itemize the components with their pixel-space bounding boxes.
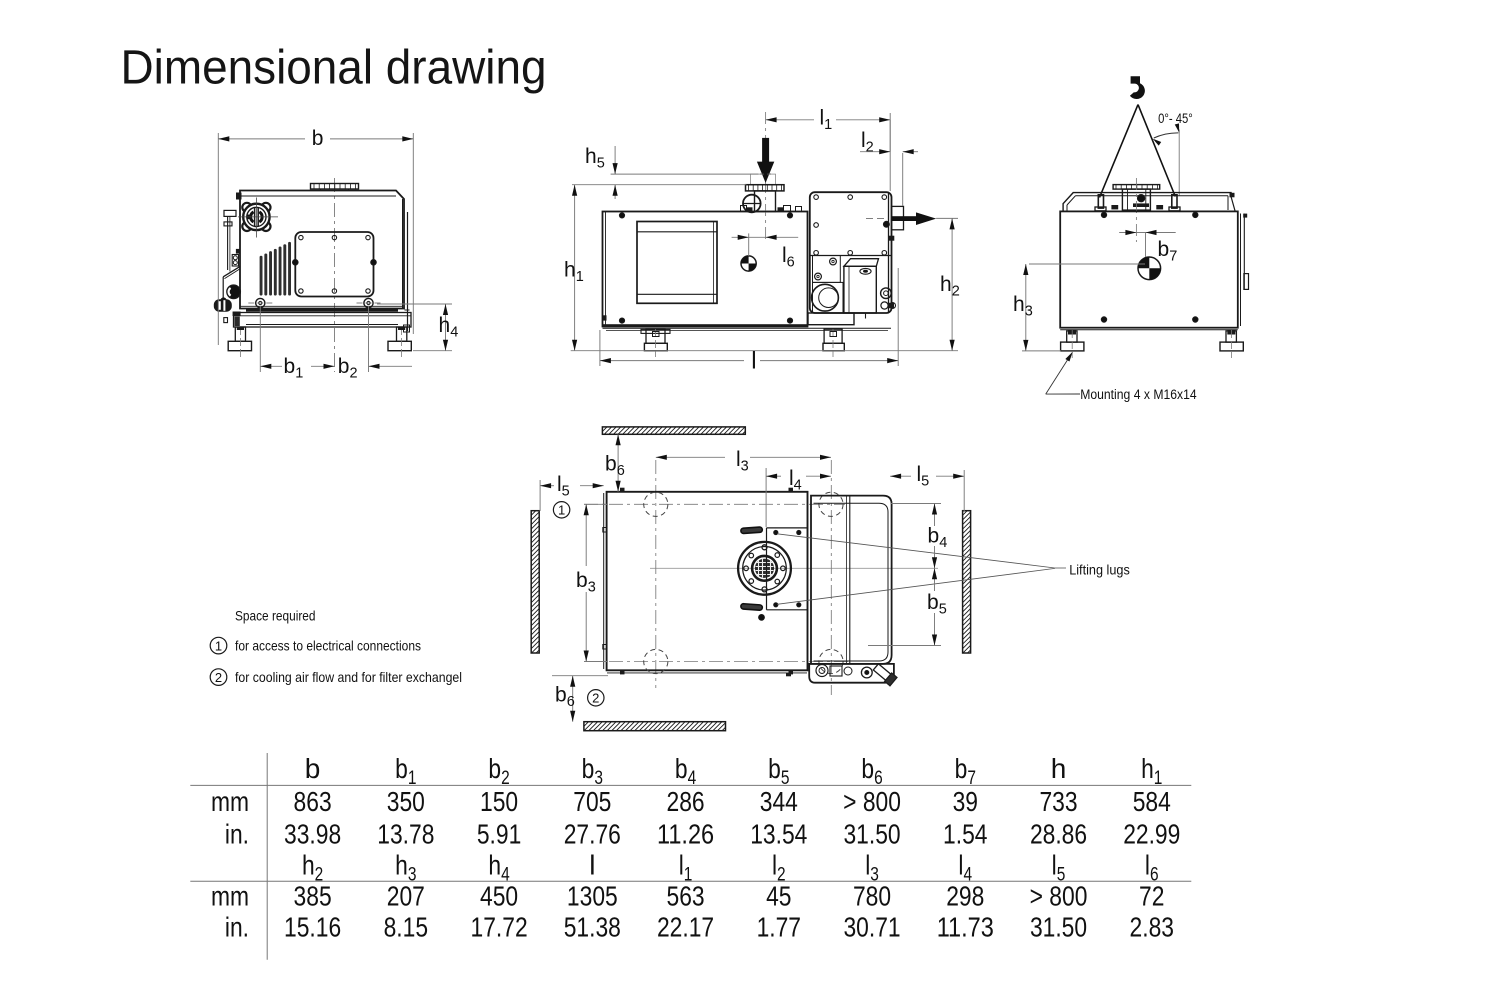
svg-text:> 800: > 800 — [1030, 881, 1088, 912]
svg-text:Mounting 4 x M16x14: Mounting 4 x M16x14 — [1080, 387, 1197, 402]
svg-text:h: h — [1051, 753, 1067, 784]
svg-text:1: 1 — [558, 503, 565, 518]
svg-text:39: 39 — [953, 786, 978, 817]
svg-text:b: b — [582, 753, 595, 784]
svg-text:13.78: 13.78 — [377, 818, 434, 849]
svg-text:in.: in. — [225, 818, 249, 849]
svg-text:72: 72 — [1139, 881, 1164, 912]
svg-text:8.15: 8.15 — [384, 911, 428, 942]
svg-text:28.86: 28.86 — [1030, 818, 1087, 849]
svg-text:l: l — [589, 849, 595, 880]
svg-text:1.77: 1.77 — [757, 911, 801, 942]
svg-text:11.26: 11.26 — [657, 818, 714, 849]
svg-text:11.73: 11.73 — [937, 911, 994, 942]
svg-text:450: 450 — [480, 881, 518, 912]
svg-text:Lifting lugs: Lifting lugs — [1069, 563, 1130, 578]
svg-text:51.38: 51.38 — [564, 911, 621, 942]
svg-text:350: 350 — [387, 786, 425, 817]
svg-text:385: 385 — [294, 881, 332, 912]
svg-text:733: 733 — [1039, 786, 1077, 817]
svg-text:705: 705 — [573, 786, 611, 817]
svg-text:22.17: 22.17 — [657, 911, 714, 942]
svg-text:b: b — [768, 753, 781, 784]
svg-text:150: 150 — [480, 786, 518, 817]
svg-text:33.98: 33.98 — [284, 818, 341, 849]
svg-text:0°- 45°: 0°- 45° — [1158, 111, 1193, 126]
svg-text:286: 286 — [667, 786, 705, 817]
svg-text:b: b — [305, 753, 321, 784]
svg-text:h: h — [1141, 753, 1154, 784]
svg-text:b: b — [955, 753, 968, 784]
svg-text:30.71: 30.71 — [843, 911, 900, 942]
svg-text:for access to electrical conne: for access to electrical connections — [235, 638, 421, 654]
svg-text:mm: mm — [211, 881, 249, 912]
svg-text:298: 298 — [946, 881, 984, 912]
svg-text:l: l — [751, 348, 756, 375]
svg-text:2.83: 2.83 — [1130, 911, 1174, 942]
svg-text:1305: 1305 — [567, 881, 618, 912]
svg-text:1.54: 1.54 — [943, 818, 987, 849]
svg-text:in.: in. — [225, 911, 249, 942]
svg-text:13.54: 13.54 — [750, 818, 807, 849]
svg-text:22.99: 22.99 — [1123, 818, 1180, 849]
svg-text:45: 45 — [766, 881, 791, 912]
svg-text:563: 563 — [667, 881, 705, 912]
svg-text:Space required: Space required — [235, 608, 316, 624]
svg-text:h: h — [395, 849, 408, 880]
svg-text:b: b — [675, 753, 688, 784]
svg-text:h: h — [302, 849, 315, 880]
svg-text:h: h — [488, 849, 501, 880]
svg-text:> 800: > 800 — [843, 786, 901, 817]
svg-text:mm: mm — [211, 786, 249, 817]
svg-text:584: 584 — [1133, 786, 1171, 817]
svg-text:b: b — [861, 753, 874, 784]
svg-text:b: b — [312, 127, 324, 150]
svg-text:Dimensional drawing: Dimensional drawing — [121, 42, 547, 95]
svg-text:2: 2 — [215, 670, 222, 685]
svg-text:31.50: 31.50 — [1030, 911, 1087, 942]
svg-text:2: 2 — [592, 691, 599, 706]
svg-text:b: b — [488, 753, 501, 784]
svg-text:207: 207 — [387, 881, 425, 912]
svg-text:780: 780 — [853, 881, 891, 912]
svg-text:344: 344 — [760, 786, 798, 817]
svg-text:15.16: 15.16 — [284, 911, 341, 942]
svg-text:5.91: 5.91 — [477, 818, 521, 849]
svg-text:b: b — [395, 753, 408, 784]
svg-text:1: 1 — [215, 638, 222, 653]
svg-text:863: 863 — [294, 786, 332, 817]
svg-text:31.50: 31.50 — [843, 818, 900, 849]
svg-text:27.76: 27.76 — [564, 818, 621, 849]
svg-text:17.72: 17.72 — [471, 911, 528, 942]
svg-text:for cooling air flow and for f: for cooling air flow and for filter exch… — [235, 669, 462, 685]
